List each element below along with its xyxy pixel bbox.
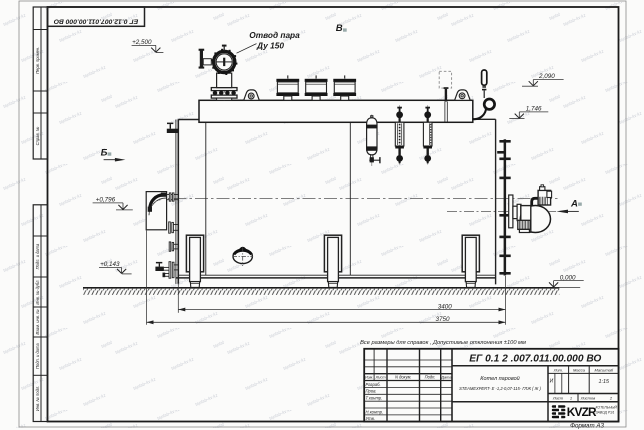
svg-text:3400: 3400 — [438, 303, 453, 310]
svg-text:+0,796: +0,796 — [96, 196, 116, 203]
svg-text:Разраб.: Разраб. — [366, 382, 381, 387]
svg-text:В: В — [336, 23, 343, 34]
svg-text:Перв. примен.: Перв. примен. — [35, 47, 40, 74]
svg-text:И: И — [550, 379, 554, 385]
svg-text:Подп. и дата: Подп. и дата — [35, 343, 40, 369]
svg-text:Н.контр.: Н.контр. — [366, 409, 384, 414]
svg-text:Т.контр.: Т.контр. — [366, 396, 383, 401]
svg-text:Лит.: Лит. — [553, 367, 563, 372]
svg-text:STEAMEXPERT- Е -1,2-0,07-115-: STEAMEXPERT- Е -1,2-0,07-115- ГЛЖ ( Ж ) — [459, 386, 541, 391]
svg-text:KVZR: KVZR — [567, 405, 597, 419]
svg-text:Утв.: Утв. — [366, 416, 376, 421]
svg-text:Ду 150: Ду 150 — [256, 41, 284, 51]
svg-text:Листов: Листов — [580, 396, 596, 401]
svg-text:Котел паровой: Котел паровой — [480, 375, 519, 382]
svg-text:Инв. № дубл.: Инв. № дубл. — [35, 279, 40, 304]
svg-text:3750: 3750 — [435, 316, 450, 323]
svg-text:Изм.: Изм. — [365, 374, 373, 379]
svg-text:Пров.: Пров. — [366, 389, 377, 394]
svg-text:Масштаб: Масштаб — [594, 367, 613, 372]
svg-text:Б: Б — [101, 148, 108, 159]
svg-text:Инв. № подл.: Инв. № подл. — [35, 386, 40, 411]
svg-text:Отвод пара: Отвод пара — [249, 30, 300, 40]
svg-text:Лист: Лист — [375, 374, 387, 379]
svg-text:Взам. инв. №: Взам. инв. № — [35, 309, 40, 335]
svg-text:Формат А3: Формат А3 — [570, 422, 604, 429]
svg-text:Масса: Масса — [573, 367, 586, 372]
svg-text:2,090: 2,090 — [538, 73, 555, 80]
svg-text:Подп.: Подп. — [425, 374, 436, 379]
svg-text:А: А — [570, 198, 578, 209]
svg-text:КОТЕЛЬНЫЙ: КОТЕЛЬНЫЙ — [596, 406, 618, 410]
svg-text:ЕГ 0.1 2 .007.011.00.000 ВО: ЕГ 0.1 2 .007.011.00.000 ВО — [469, 353, 601, 364]
svg-text:Лист: Лист — [552, 396, 564, 401]
svg-text:Дата: Дата — [440, 374, 452, 379]
svg-text:N докум.: N докум. — [395, 374, 412, 379]
svg-text:1: 1 — [570, 396, 572, 401]
svg-text:Подп. и дата: Подп. и дата — [35, 243, 40, 269]
svg-text:ЕГ 0.12.007.011.00.000 ВО: ЕГ 0.12.007.011.00.000 ВО — [53, 18, 138, 25]
svg-text:1:15: 1:15 — [599, 379, 610, 385]
svg-text:Все размеры для справок , Допу: Все размеры для справок , Допустимые отк… — [360, 340, 526, 346]
svg-text:ЗАВОД РЭ1: ЗАВОД РЭ1 — [596, 411, 615, 415]
svg-text:Справ. №: Справ. № — [35, 126, 40, 145]
svg-text:+0,143: +0,143 — [100, 261, 120, 268]
